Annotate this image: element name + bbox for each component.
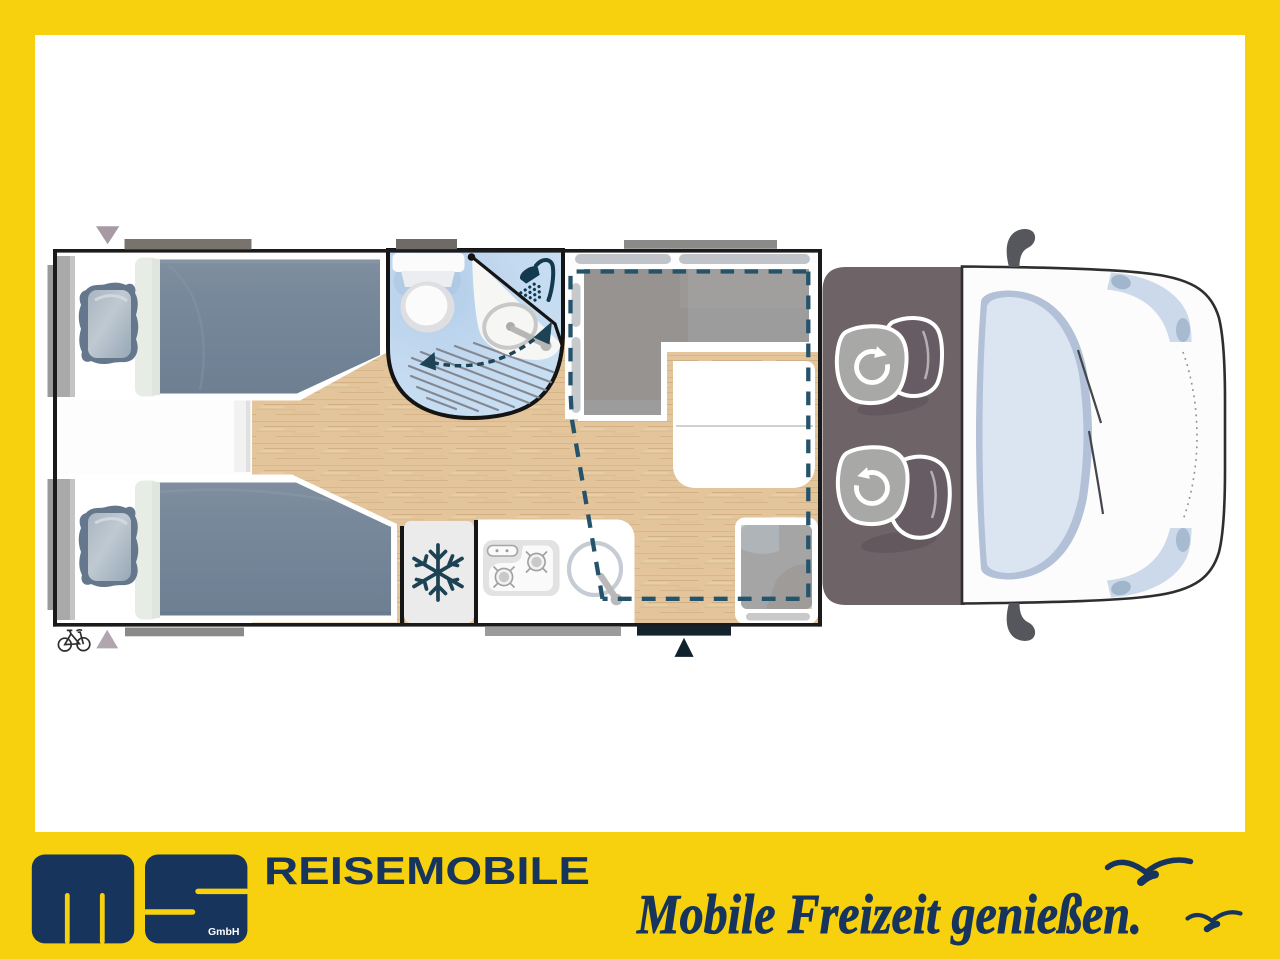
svg-text:GmbH: GmbH xyxy=(208,926,240,938)
svg-text:Mobile Freizeit genießen.: Mobile Freizeit genießen. xyxy=(636,884,1142,946)
svg-text:REISEMOBILE: REISEMOBILE xyxy=(264,850,590,893)
